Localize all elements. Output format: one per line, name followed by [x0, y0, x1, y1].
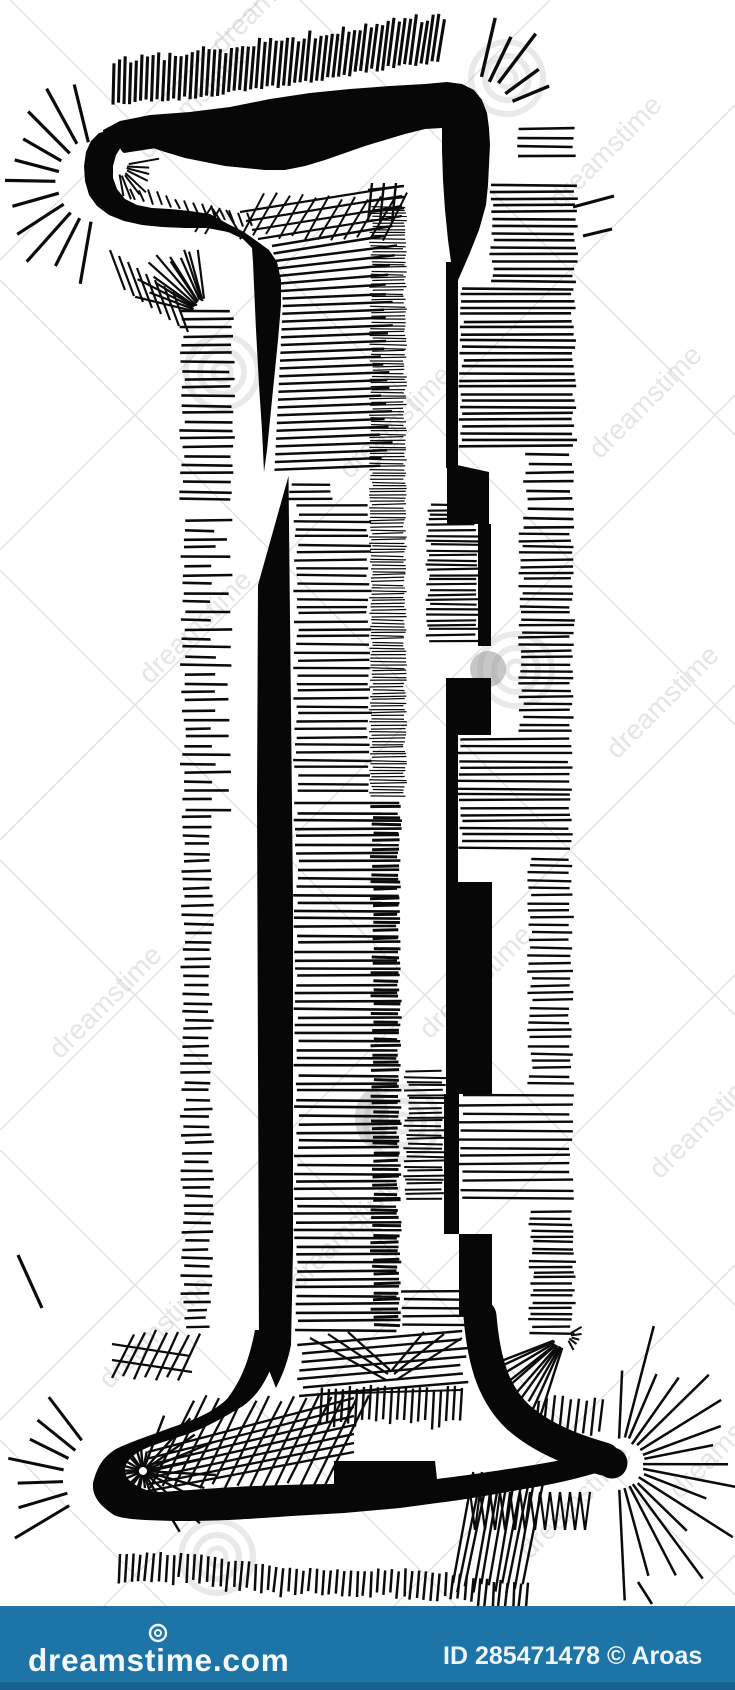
svg-text:ID 285471478 © Aroas: ID 285471478 © Aroas [443, 1642, 702, 1670]
svg-text:dreamstime.com: dreamstime.com [28, 1642, 290, 1678]
